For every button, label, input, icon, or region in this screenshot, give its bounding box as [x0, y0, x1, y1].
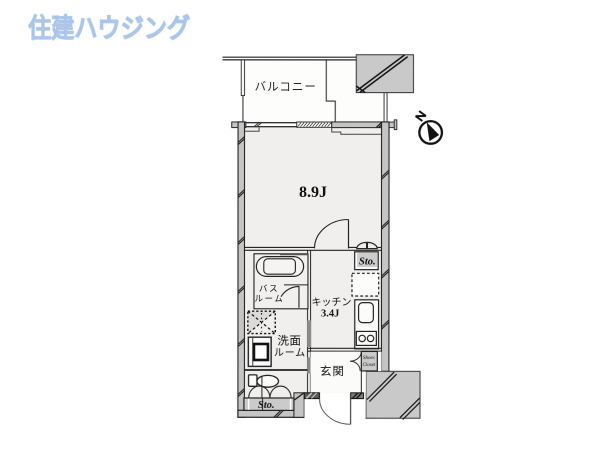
svg-text:Sto.: Sto. [359, 256, 376, 267]
svg-text:洗面: 洗面 [277, 334, 301, 347]
svg-text:玄関: 玄関 [320, 364, 345, 378]
svg-text:バルコニー: バルコニー [255, 80, 317, 93]
svg-text:Shoes: Shoes [363, 356, 375, 361]
svg-text:Sto.: Sto. [258, 400, 275, 411]
svg-text:住建ハウジング: 住建ハウジング [28, 13, 190, 43]
svg-text:ルーム: ルーム [254, 293, 284, 303]
svg-text:キッチン: キッチン [311, 296, 351, 308]
svg-text:3.4J: 3.4J [321, 309, 339, 320]
svg-text:8.9J: 8.9J [299, 184, 327, 201]
svg-text:Closet: Closet [363, 363, 376, 368]
svg-text:バス: バス [259, 283, 279, 293]
svg-text:ルーム: ルーム [274, 347, 306, 359]
